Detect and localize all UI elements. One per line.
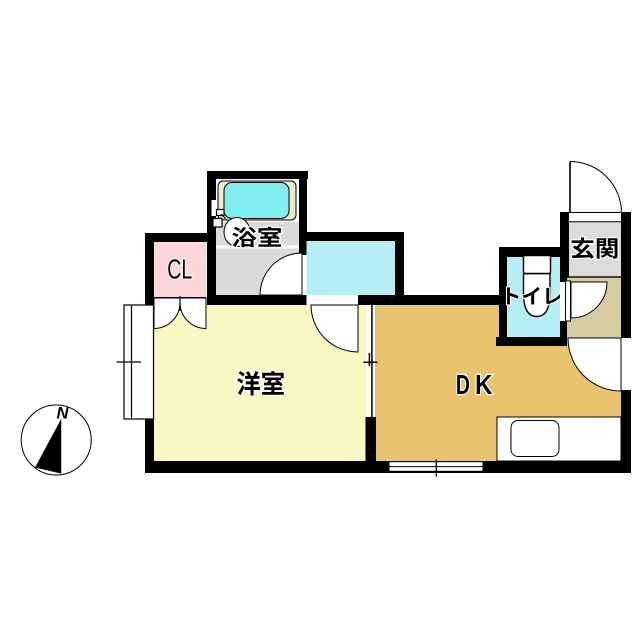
svg-text:N: N bbox=[57, 404, 70, 422]
svg-text:K: K bbox=[475, 369, 493, 400]
svg-text:CL: CL bbox=[167, 253, 192, 284]
svg-text:D: D bbox=[456, 369, 470, 400]
